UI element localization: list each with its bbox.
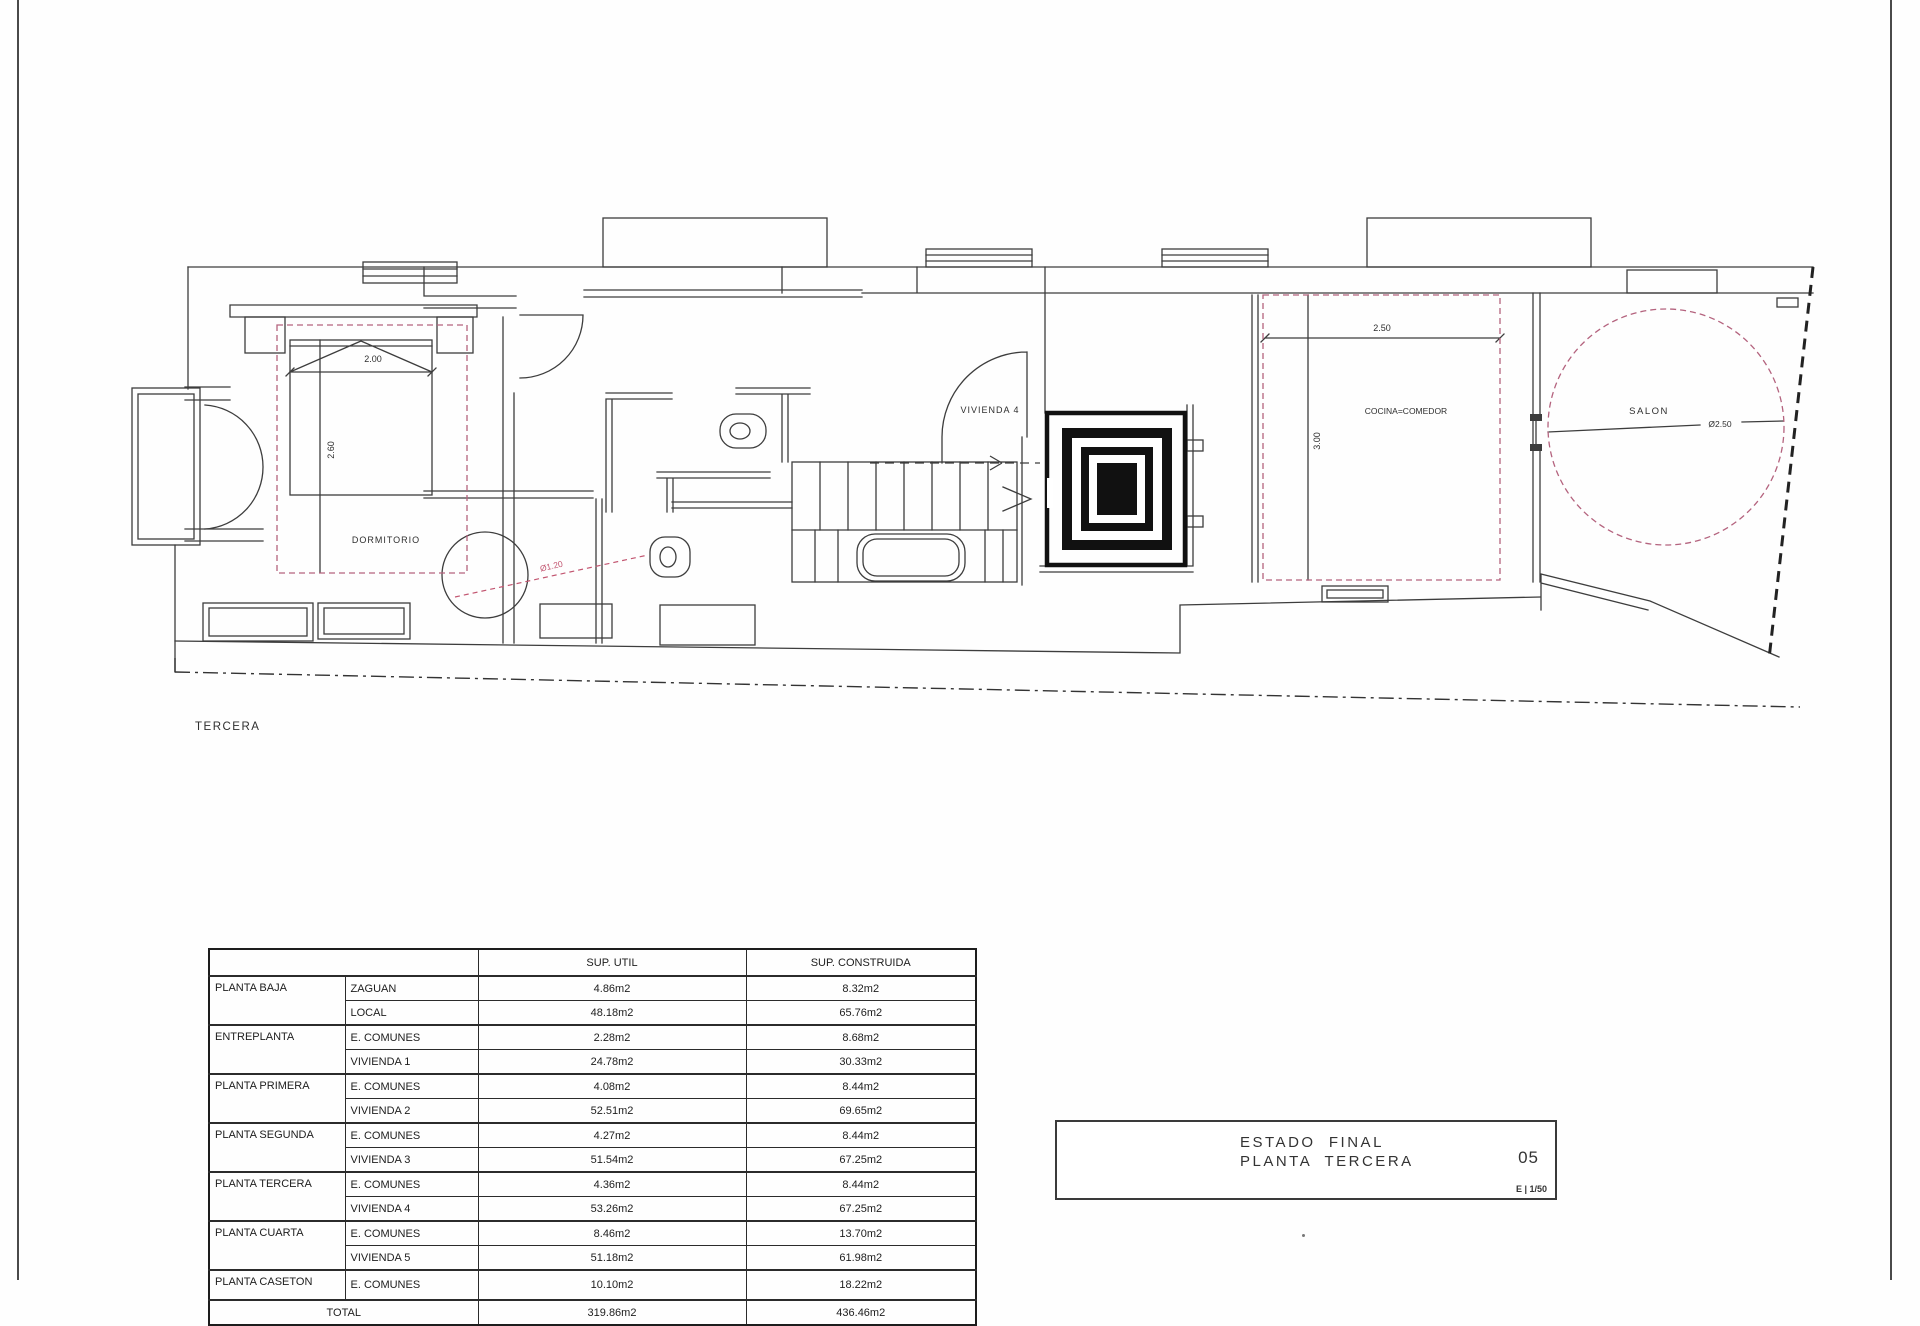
cell-sup-construida: 8.44m2 — [746, 1074, 976, 1099]
cell-floor: PLANTA BAJA — [209, 976, 345, 1025]
header-blank — [209, 949, 478, 976]
cell-sup-construida: 436.46m2 — [746, 1300, 976, 1325]
dim-shower-diameter: Ø1.20 — [539, 559, 564, 574]
cell-space: VIVIENDA 2 — [345, 1099, 478, 1124]
drawing-title: ESTADO FINALPLANTA TERCERA — [1240, 1133, 1414, 1171]
cell-floor: TOTAL — [209, 1300, 478, 1325]
dim-bed-width: 2.00 — [364, 354, 382, 364]
cell-sup-util: 4.27m2 — [478, 1123, 746, 1148]
drawing-title-line1: ESTADO FINAL — [1240, 1134, 1384, 1151]
table-row: PLANTA SEGUNDAE. COMUNES4.27m28.44m2 — [209, 1123, 976, 1148]
cell-sup-util: 10.10m2 — [478, 1270, 746, 1300]
cell-space: E. COMUNES — [345, 1221, 478, 1246]
drawing-title-line2: PLANTA TERCERA — [1240, 1153, 1414, 1170]
cell-sup-construida: 65.76m2 — [746, 1001, 976, 1026]
dim-bed-depth: 2.60 — [326, 441, 336, 459]
cell-space: E. COMUNES — [345, 1270, 478, 1300]
cell-sup-construida: 67.25m2 — [746, 1148, 976, 1173]
sheet-scale: E | 1/50 — [1516, 1184, 1547, 1194]
table-row: TOTAL319.86m2436.46m2 — [209, 1300, 976, 1325]
cell-space: LOCAL — [345, 1001, 478, 1026]
header-sup-util: SUP. UTIL — [478, 949, 746, 976]
cell-space: VIVIENDA 3 — [345, 1148, 478, 1173]
table-row: PLANTA CASETONE. COMUNES10.10m218.22m2 — [209, 1270, 976, 1300]
header-sup-construida: SUP. CONSTRUIDA — [746, 949, 976, 976]
cell-sup-construida: 69.65m2 — [746, 1099, 976, 1124]
cell-sup-util: 51.54m2 — [478, 1148, 746, 1173]
cell-floor: ENTREPLANTA — [209, 1025, 345, 1074]
cell-sup-construida: 8.44m2 — [746, 1123, 976, 1148]
room-label-dormitorio: DORMITORIO — [352, 535, 420, 545]
title-block: ESTADO FINALPLANTA TERCERA 05 E | 1/50 — [1055, 1120, 1557, 1200]
cell-sup-util: 52.51m2 — [478, 1099, 746, 1124]
plan-walls — [132, 218, 1813, 672]
property-line — [175, 672, 1800, 707]
cell-floor: PLANTA TERCERA — [209, 1172, 345, 1221]
cell-floor: PLANTA CUARTA — [209, 1221, 345, 1270]
cell-space: VIVIENDA 1 — [345, 1050, 478, 1075]
cell-sup-util: 51.18m2 — [478, 1246, 746, 1271]
cell-sup-util: 24.78m2 — [478, 1050, 746, 1075]
sheet-number: 05 — [1518, 1148, 1539, 1168]
areas-table-header-row: SUP. UTIL SUP. CONSTRUIDA — [209, 949, 976, 976]
cell-floor: PLANTA PRIMERA — [209, 1074, 345, 1123]
cell-sup-util: 4.08m2 — [478, 1074, 746, 1099]
cell-space: VIVIENDA 4 — [345, 1197, 478, 1222]
cell-space: E. COMUNES — [345, 1123, 478, 1148]
cell-sup-construida: 8.68m2 — [746, 1025, 976, 1050]
table-row: PLANTA TERCERAE. COMUNES4.36m28.44m2 — [209, 1172, 976, 1197]
elevator — [1047, 413, 1185, 565]
room-label-salon: SALON — [1629, 406, 1669, 417]
right-boundary — [1769, 267, 1813, 659]
cell-sup-construida: 18.22m2 — [746, 1270, 976, 1300]
room-label-vivienda4: VIVIENDA 4 — [960, 405, 1019, 415]
dim-salon-diameter: Ø2.50 — [1708, 419, 1731, 429]
table-row: PLANTA PRIMERAE. COMUNES4.08m28.44m2 — [209, 1074, 976, 1099]
table-row: PLANTA CUARTAE. COMUNES8.46m213.70m2 — [209, 1221, 976, 1246]
cell-sup-util: 8.46m2 — [478, 1221, 746, 1246]
cell-sup-util: 4.36m2 — [478, 1172, 746, 1197]
room-label-cocina: COCINA=COMEDOR — [1365, 406, 1447, 416]
cell-sup-util: 319.86m2 — [478, 1300, 746, 1325]
cell-sup-construida: 61.98m2 — [746, 1246, 976, 1271]
stray-mark — [1302, 1234, 1305, 1237]
cell-sup-construida: 30.33m2 — [746, 1050, 976, 1075]
cell-floor: PLANTA SEGUNDA — [209, 1123, 345, 1172]
cell-space: VIVIENDA 5 — [345, 1246, 478, 1271]
cell-space: E. COMUNES — [345, 1172, 478, 1197]
cell-sup-util: 53.26m2 — [478, 1197, 746, 1222]
cell-sup-util: 4.86m2 — [478, 976, 746, 1001]
cell-sup-util: 2.28m2 — [478, 1025, 746, 1050]
cell-space: E. COMUNES — [345, 1025, 478, 1050]
cell-floor: PLANTA CASETON — [209, 1270, 345, 1300]
cell-space: E. COMUNES — [345, 1074, 478, 1099]
cell-sup-construida: 8.44m2 — [746, 1172, 976, 1197]
table-row: ENTREPLANTAE. COMUNES2.28m28.68m2 — [209, 1025, 976, 1050]
cell-sup-construida: 13.70m2 — [746, 1221, 976, 1246]
cell-sup-construida: 67.25m2 — [746, 1197, 976, 1222]
dim-cocina-width: 2.50 — [1373, 323, 1391, 333]
areas-table: SUP. UTIL SUP. CONSTRUIDA PLANTA BAJAZAG… — [208, 948, 977, 1326]
floor-plan-title: TERCERA — [195, 721, 260, 733]
cell-space: ZAGUAN — [345, 976, 478, 1001]
cell-sup-construida: 8.32m2 — [746, 976, 976, 1001]
dim-cocina-depth: 3.00 — [1312, 432, 1322, 450]
cell-sup-util: 48.18m2 — [478, 1001, 746, 1026]
table-row: PLANTA BAJAZAGUAN4.86m28.32m2 — [209, 976, 976, 1001]
